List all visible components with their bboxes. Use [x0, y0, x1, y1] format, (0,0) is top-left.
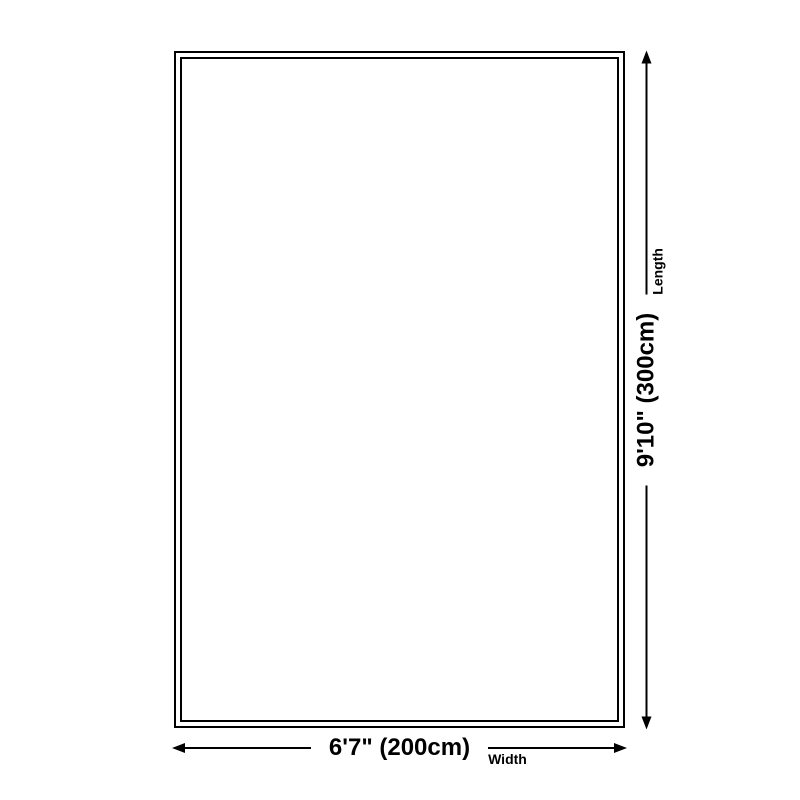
- rug-inner-border: [180, 57, 619, 722]
- length-value: 9'10" (300cm): [635, 295, 659, 486]
- width-value: 6'7" (200cm): [311, 736, 488, 760]
- arrowhead-up-icon: [642, 50, 652, 63]
- length-dimension-arrow: 9'10" (300cm) Length: [632, 51, 662, 730]
- rug-dimension-diagram: 6'7" (200cm) Width 9'10" (300cm) Length: [0, 0, 800, 800]
- width-label: Width: [488, 752, 527, 766]
- width-dimension-line-right: Width: [488, 747, 614, 749]
- width-dimension-line-left: [185, 747, 311, 749]
- length-dimension-line-lower: [646, 485, 648, 716]
- length-label: Length: [651, 248, 665, 295]
- length-dimension-line-upper: Length: [646, 63, 648, 294]
- rug-outline: [174, 51, 625, 728]
- arrowhead-left-icon: [172, 743, 185, 753]
- width-dimension-arrow: 6'7" (200cm) Width: [172, 733, 627, 763]
- arrowhead-down-icon: [642, 717, 652, 730]
- arrowhead-right-icon: [614, 743, 627, 753]
